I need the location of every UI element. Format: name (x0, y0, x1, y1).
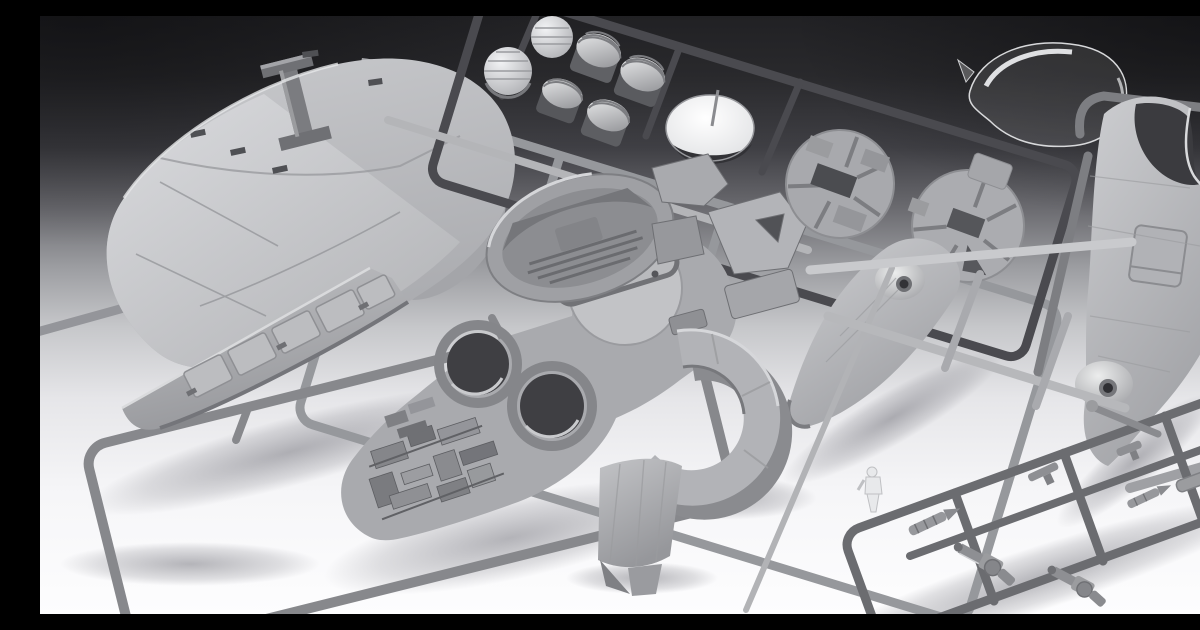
engine-opening (512, 366, 592, 446)
model-kit-photo (40, 16, 1200, 614)
plate-hole (652, 271, 659, 278)
pod-access-pocket (1128, 225, 1187, 288)
radar-dome-part (531, 16, 573, 58)
engine-opening (439, 325, 517, 403)
radar-dome-part (484, 47, 532, 97)
photo-canvas (40, 16, 1200, 614)
